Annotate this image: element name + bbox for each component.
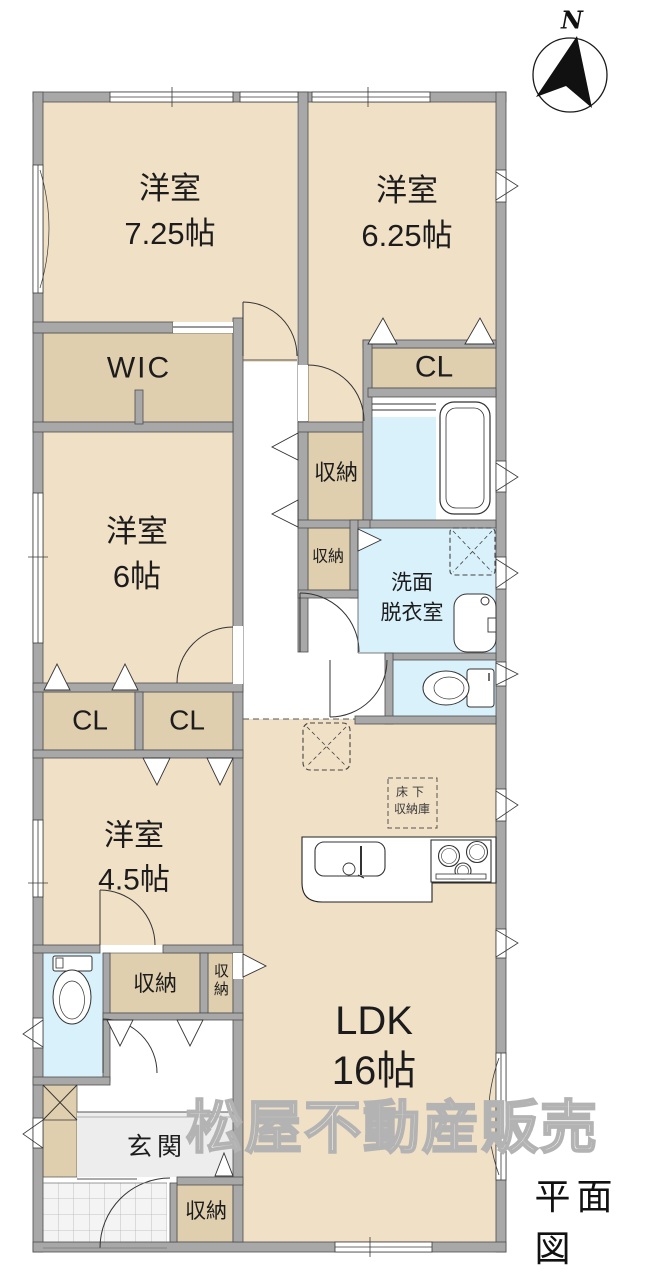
washroom-line2: 脱衣室 (381, 599, 444, 629)
room-label-bedroom-45: 洋室 4.5帖 (98, 815, 170, 902)
stove-icon (431, 840, 491, 882)
floor-plan: 洋室 7.25帖 洋室 6.25帖 WIC 洋室 6帖 CL 収納 収納 洗面 … (0, 0, 671, 1280)
room-size: 6.25帖 (361, 214, 452, 259)
room-label-entry: 玄関 (127, 1129, 187, 1165)
washbasin-icon (454, 594, 496, 652)
room-label-wic: WIC (107, 346, 171, 390)
toilet-icon-2 (53, 956, 92, 1024)
room-size: 4.5帖 (98, 858, 170, 902)
room-size: 16帖 (332, 1046, 417, 1096)
room-name: 洋室 (106, 510, 168, 555)
room-label-closet-right: CL (169, 701, 205, 742)
room-label-bedroom-625: 洋室 6.25帖 (361, 169, 452, 259)
bathtub-icon (440, 402, 490, 514)
room-size: 7.25帖 (124, 212, 215, 257)
room-name: 洋室 (124, 167, 215, 212)
washroom-line1: 洗面 (381, 569, 444, 599)
underfloor-line1: 床下 (394, 784, 430, 801)
room-name: 洋室 (361, 169, 452, 214)
room-label-storage-vertical: 収納 (209, 963, 231, 999)
room-label-closet-left: CL (72, 701, 108, 742)
room-label-hall-storage-small: 収納 (312, 545, 344, 568)
label-underfloor-storage: 床下 収納庫 (394, 784, 430, 818)
room-size: 6帖 (106, 555, 168, 600)
room-label-bedroom-725: 洋室 7.25帖 (124, 167, 215, 257)
room-name: LDK (332, 996, 417, 1046)
toilet-icon (423, 669, 494, 707)
compass-north-label: N (561, 6, 583, 35)
room-label-hall-storage-large: 収納 (314, 457, 358, 489)
compass-icon (533, 36, 607, 112)
room-label-closet-upper: CL (415, 345, 453, 389)
room-label-ldk: LDK 16帖 (332, 996, 417, 1096)
room-label-washroom: 洗面 脱衣室 (381, 569, 444, 630)
room-label-entry-storage: 収納 (185, 1197, 227, 1227)
underfloor-line2: 収納庫 (394, 801, 430, 818)
room-label-storage-by-toilet: 収納 (133, 968, 177, 1000)
room-name: 洋室 (98, 815, 170, 859)
plan-title: 平面図 (535, 1168, 626, 1272)
kitchen-sink-icon (315, 842, 385, 878)
room-floors (43, 100, 496, 1248)
room-label-bedroom-6: 洋室 6帖 (106, 510, 168, 600)
